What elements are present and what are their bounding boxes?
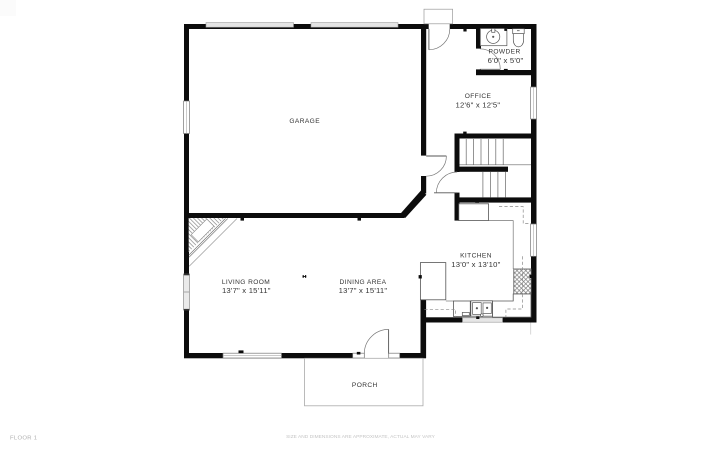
svg-text:SIZE AND DIMENSIONS ARE APPROX: SIZE AND DIMENSIONS ARE APPROXIMATE, ACT… bbox=[286, 434, 436, 440]
svg-text:OFFICE: OFFICE bbox=[465, 93, 492, 100]
svg-text:12'6" x 12'5": 12'6" x 12'5" bbox=[456, 101, 501, 110]
svg-text:POWDER: POWDER bbox=[489, 49, 521, 56]
svg-text:GARAGE: GARAGE bbox=[289, 118, 320, 125]
svg-text:LIVING ROOM: LIVING ROOM bbox=[222, 279, 270, 286]
svg-text:FLOOR 1: FLOOR 1 bbox=[10, 435, 37, 441]
svg-text:PORCH: PORCH bbox=[352, 382, 378, 389]
svg-text:6'0" x 5'0": 6'0" x 5'0" bbox=[488, 56, 524, 65]
svg-text:KITCHEN: KITCHEN bbox=[460, 253, 492, 260]
svg-text:13'0" x 13'10": 13'0" x 13'10" bbox=[451, 260, 500, 269]
svg-text:DINING AREA: DINING AREA bbox=[340, 279, 387, 286]
svg-text:13'7" x 15'11": 13'7" x 15'11" bbox=[339, 286, 388, 295]
svg-text:13'7" x 15'11": 13'7" x 15'11" bbox=[222, 286, 271, 295]
